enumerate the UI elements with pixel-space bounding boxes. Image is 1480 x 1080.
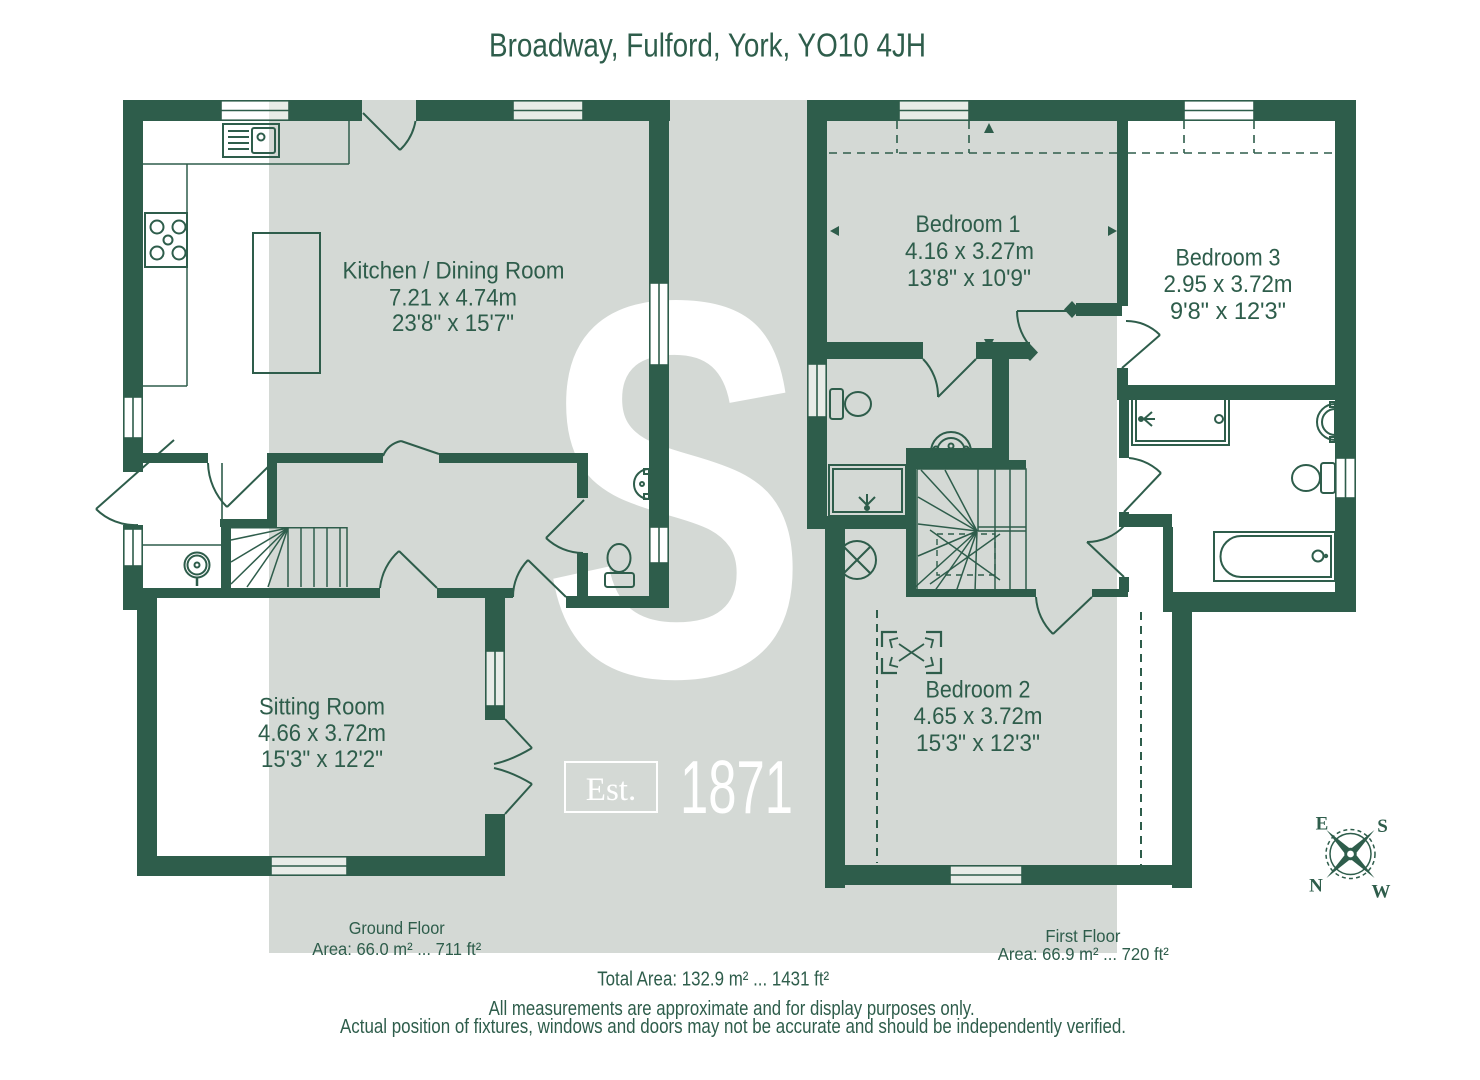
svg-text:First Floor: First Floor: [1045, 926, 1120, 946]
svg-text:Area: 66.0 m² ... 711 ft²: Area: 66.0 m² ... 711 ft²: [312, 939, 481, 959]
svg-text:Est.: Est.: [586, 772, 636, 808]
svg-text:Area: 66.9 m² ... 720 ft²: Area: 66.9 m² ... 720 ft²: [998, 944, 1169, 964]
svg-text:Bedroom 3: Bedroom 3: [1176, 245, 1281, 272]
svg-text:4.66 x 3.72m: 4.66 x 3.72m: [258, 720, 386, 747]
svg-text:S: S: [1377, 816, 1388, 837]
svg-text:4.65 x 3.72m: 4.65 x 3.72m: [914, 703, 1043, 730]
svg-text:Sitting Room: Sitting Room: [259, 694, 385, 721]
svg-text:15'3" x 12'2": 15'3" x 12'2": [261, 746, 383, 773]
svg-text:1871: 1871: [680, 745, 793, 829]
svg-text:7.21 x 4.74m: 7.21 x 4.74m: [389, 285, 517, 312]
svg-text:Ground Floor: Ground Floor: [349, 918, 445, 938]
svg-text:23'8" x 15'7": 23'8" x 15'7": [392, 310, 514, 337]
svg-text:N: N: [1309, 876, 1323, 897]
svg-text:Kitchen / Dining Room: Kitchen / Dining Room: [343, 258, 565, 285]
svg-text:Total Area: 132.9 m² ... 1431: Total Area: 132.9 m² ... 1431 ft²: [597, 969, 829, 991]
svg-text:W: W: [1372, 882, 1391, 903]
svg-text:2.95 x 3.72m: 2.95 x 3.72m: [1164, 271, 1293, 298]
svg-text:Actual position of fixtures, w: Actual position of fixtures, windows and…: [340, 1016, 1126, 1038]
svg-text:E: E: [1316, 814, 1329, 835]
svg-text:Bedroom 2: Bedroom 2: [926, 677, 1031, 704]
svg-text:Bedroom 1: Bedroom 1: [916, 211, 1021, 238]
svg-text:Broadway, Fulford, York, YO10: Broadway, Fulford, York, YO10 4JH: [489, 27, 926, 64]
svg-text:4.16 x 3.27m: 4.16 x 3.27m: [905, 238, 1034, 265]
svg-text:13'8" x 10'9": 13'8" x 10'9": [907, 265, 1031, 292]
svg-text:9'8" x 12'3": 9'8" x 12'3": [1170, 298, 1286, 325]
svg-text:15'3" x 12'3": 15'3" x 12'3": [916, 730, 1040, 757]
